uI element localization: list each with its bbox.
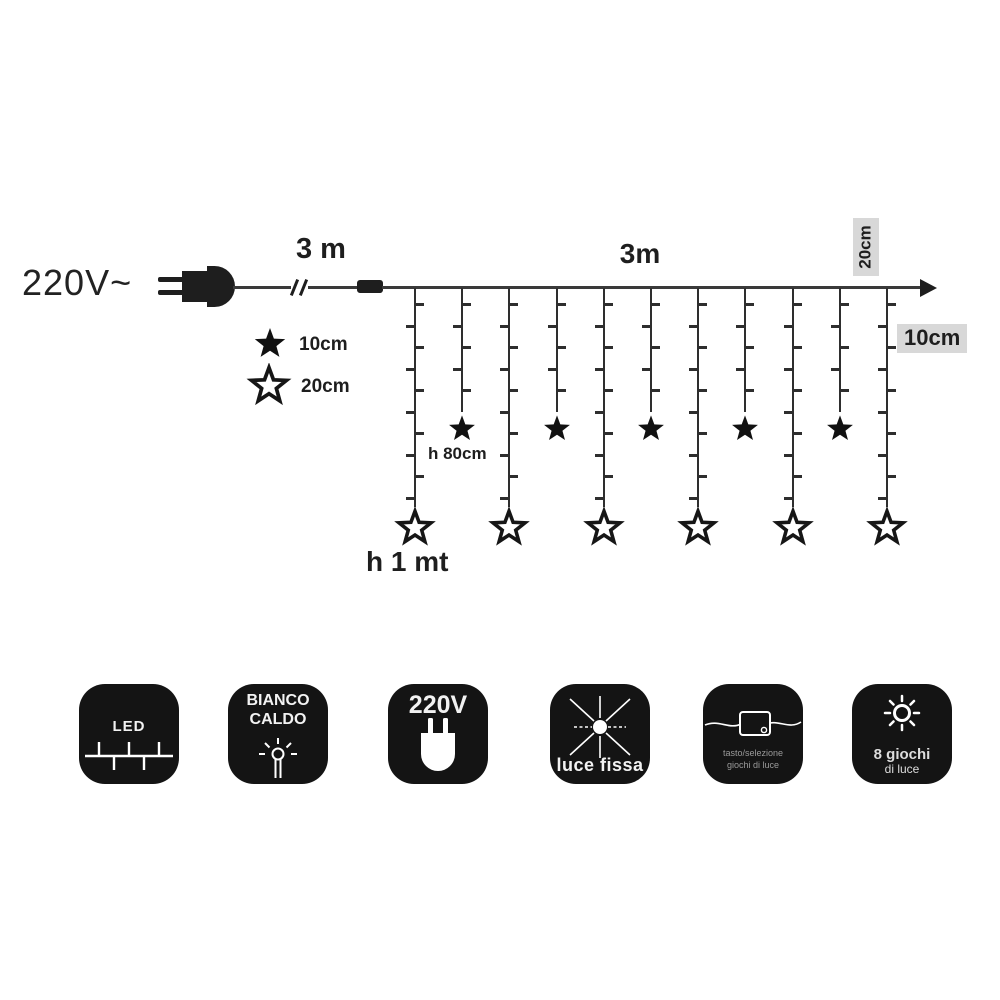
led-bulb-tick [689, 411, 697, 414]
led-bulb-tick [453, 368, 461, 371]
outline-star-20cm-icon [488, 507, 530, 549]
led-bulb-tick [510, 303, 518, 306]
voltage-label: 220V~ [22, 262, 132, 304]
controller-label-line1: tasto/selezione [703, 748, 803, 758]
led-bulb-tick [416, 432, 424, 435]
led-bulb-tick [746, 389, 754, 392]
led-bulb-tick [595, 325, 603, 328]
wire-end-arrow-icon [920, 279, 937, 297]
outline-star-20cm-icon [772, 507, 814, 549]
sun-modes-icon [882, 694, 922, 734]
led-bulb-tick [878, 497, 886, 500]
led-bulb-tick [784, 454, 792, 457]
badge-luce-fissa: luce fissa [550, 684, 650, 784]
led-bulb-tick [406, 454, 414, 457]
led-bulb-tick [510, 346, 518, 349]
light-string-icon [79, 684, 179, 784]
outline-star-20cm-icon [583, 507, 625, 549]
plug-head-icon [207, 266, 235, 307]
led-bulb-tick [548, 368, 556, 371]
filled-star-10cm-icon [728, 412, 762, 446]
plug-prong-icon [158, 277, 184, 282]
led-bulb-tick [605, 432, 613, 435]
led-bulb-tick [784, 368, 792, 371]
led-bulb-tick [500, 368, 508, 371]
led-bulb-tick [500, 411, 508, 414]
led-bulb-tick [736, 368, 744, 371]
led-bulb-tick [605, 303, 613, 306]
plug-prong-icon [158, 290, 184, 295]
main-wire [382, 286, 922, 289]
led-bulb-tick [510, 475, 518, 478]
warm-white-label-line1: BIANCO [228, 692, 328, 710]
led-bulb-tick [605, 346, 613, 349]
led-bulb-tick [841, 389, 849, 392]
lead-wire-segment [308, 286, 358, 289]
led-bulb-tick [794, 389, 802, 392]
led-bulb-tick [642, 368, 650, 371]
led-bulb-tick [689, 497, 697, 500]
filled-star-10cm-icon [540, 412, 574, 446]
led-bulb-tick [463, 346, 471, 349]
led-bulb-tick [878, 368, 886, 371]
led-spacing-label: 10cm [897, 324, 967, 353]
led-bulb-tick [500, 454, 508, 457]
led-bulb-tick [510, 432, 518, 435]
drop-wire [744, 288, 746, 412]
filled-star-10cm-icon [445, 412, 479, 446]
led-bulb-tick [453, 325, 461, 328]
wire-break-icon [299, 279, 308, 296]
led-bulb-tick [841, 346, 849, 349]
led-bulb-tick [888, 346, 896, 349]
led-bulb-tick [888, 389, 896, 392]
led-bulb-tick [878, 454, 886, 457]
led-bulb-tick [406, 411, 414, 414]
led-bulb-tick [699, 475, 707, 478]
lead-wire-segment [233, 286, 291, 289]
led-bulb-tick [689, 368, 697, 371]
led-bulb-tick [605, 389, 613, 392]
wire-break-icon [290, 279, 299, 296]
led-bulb-tick [689, 325, 697, 328]
led-bulb-tick [878, 411, 886, 414]
led-bulb-tick [416, 389, 424, 392]
led-bulb-tick [699, 346, 707, 349]
led-bulb-tick [463, 303, 471, 306]
led-bulb-tick [605, 475, 613, 478]
drop-wire [556, 288, 558, 412]
steady-light-label: luce fissa [550, 755, 650, 776]
legend-filled-star-label: 10cm [299, 334, 348, 356]
led-bulb-tick [500, 325, 508, 328]
led-bulb-tick [642, 325, 650, 328]
badge-8-giochi: 8 giochi di luce [852, 684, 952, 784]
led-bulb-tick [416, 303, 424, 306]
led-bulb-tick [558, 303, 566, 306]
glowing-bulb-icon [256, 734, 300, 780]
led-bulb-tick [746, 346, 754, 349]
badge-controller: tasto/selezione giochi di luce [703, 684, 803, 784]
led-bulb-tick [888, 475, 896, 478]
led-bulb-tick [794, 346, 802, 349]
led-bulb-tick [416, 475, 424, 478]
led-bulb-tick [746, 303, 754, 306]
led-bulb-tick [784, 497, 792, 500]
plug-icon [388, 684, 488, 784]
led-bulb-tick [736, 325, 744, 328]
connector-box-icon [357, 280, 383, 293]
led-bulb-tick [699, 389, 707, 392]
end-spacing-label: 20cm [853, 218, 879, 276]
led-bulb-tick [652, 389, 660, 392]
outline-star-20cm-icon [866, 507, 908, 549]
led-bulb-tick [689, 454, 697, 457]
led-bulb-tick [794, 475, 802, 478]
controller-label-line2: giochi di luce [703, 760, 803, 770]
led-bulb-tick [652, 303, 660, 306]
led-bulb-tick [784, 411, 792, 414]
legend-filled-star-icon [250, 324, 290, 364]
badge-led: LED [79, 684, 179, 784]
long-drop-height-label: h 1 mt [366, 546, 448, 578]
led-bulb-tick [888, 432, 896, 435]
led-bulb-tick [558, 389, 566, 392]
led-bulb-tick [794, 432, 802, 435]
led-bulb-tick [406, 368, 414, 371]
filled-star-10cm-icon [823, 412, 857, 446]
led-bulb-tick [794, 303, 802, 306]
led-bulb-tick [831, 325, 839, 328]
plug-body-icon [182, 271, 208, 302]
led-bulb-tick [595, 497, 603, 500]
modes-label-line2: di luce [852, 762, 952, 776]
badge-bianco-caldo: BIANCO CALDO [228, 684, 328, 784]
led-bulb-tick [463, 389, 471, 392]
legend-outline-star-label: 20cm [301, 376, 350, 398]
legend-outline-star-icon [246, 363, 292, 409]
led-bulb-tick [595, 454, 603, 457]
drop-wire [650, 288, 652, 412]
led-bulb-tick [416, 346, 424, 349]
led-bulb-tick [831, 368, 839, 371]
led-bulb-tick [558, 346, 566, 349]
lead-length-label: 3 m [276, 233, 366, 266]
wiring-diagram: 220V~ 3 m 3m 20cm 10cm 10cm 20cm h 80cm … [0, 0, 1000, 660]
led-bulb-tick [500, 497, 508, 500]
badge-220v: 220V [388, 684, 488, 784]
modes-label-line1: 8 giochi [852, 746, 952, 763]
led-bulb-tick [784, 325, 792, 328]
led-bulb-tick [510, 389, 518, 392]
warm-white-label-line2: CALDO [228, 711, 328, 729]
drop-wire [461, 288, 463, 412]
led-bulb-tick [699, 303, 707, 306]
led-bulb-tick [888, 303, 896, 306]
drop-wire [839, 288, 841, 412]
outline-star-20cm-icon [677, 507, 719, 549]
led-bulb-tick [652, 346, 660, 349]
led-bulb-tick [841, 303, 849, 306]
led-bulb-tick [406, 497, 414, 500]
filled-star-10cm-icon [634, 412, 668, 446]
outline-star-20cm-icon [394, 507, 436, 549]
short-drop-height-label: h 80cm [428, 444, 487, 464]
led-bulb-tick [548, 325, 556, 328]
led-bulb-tick [595, 368, 603, 371]
led-bulb-tick [595, 411, 603, 414]
led-bulb-tick [406, 325, 414, 328]
led-bulb-tick [699, 432, 707, 435]
led-bulb-tick [878, 325, 886, 328]
curtain-length-label: 3m [595, 238, 685, 270]
